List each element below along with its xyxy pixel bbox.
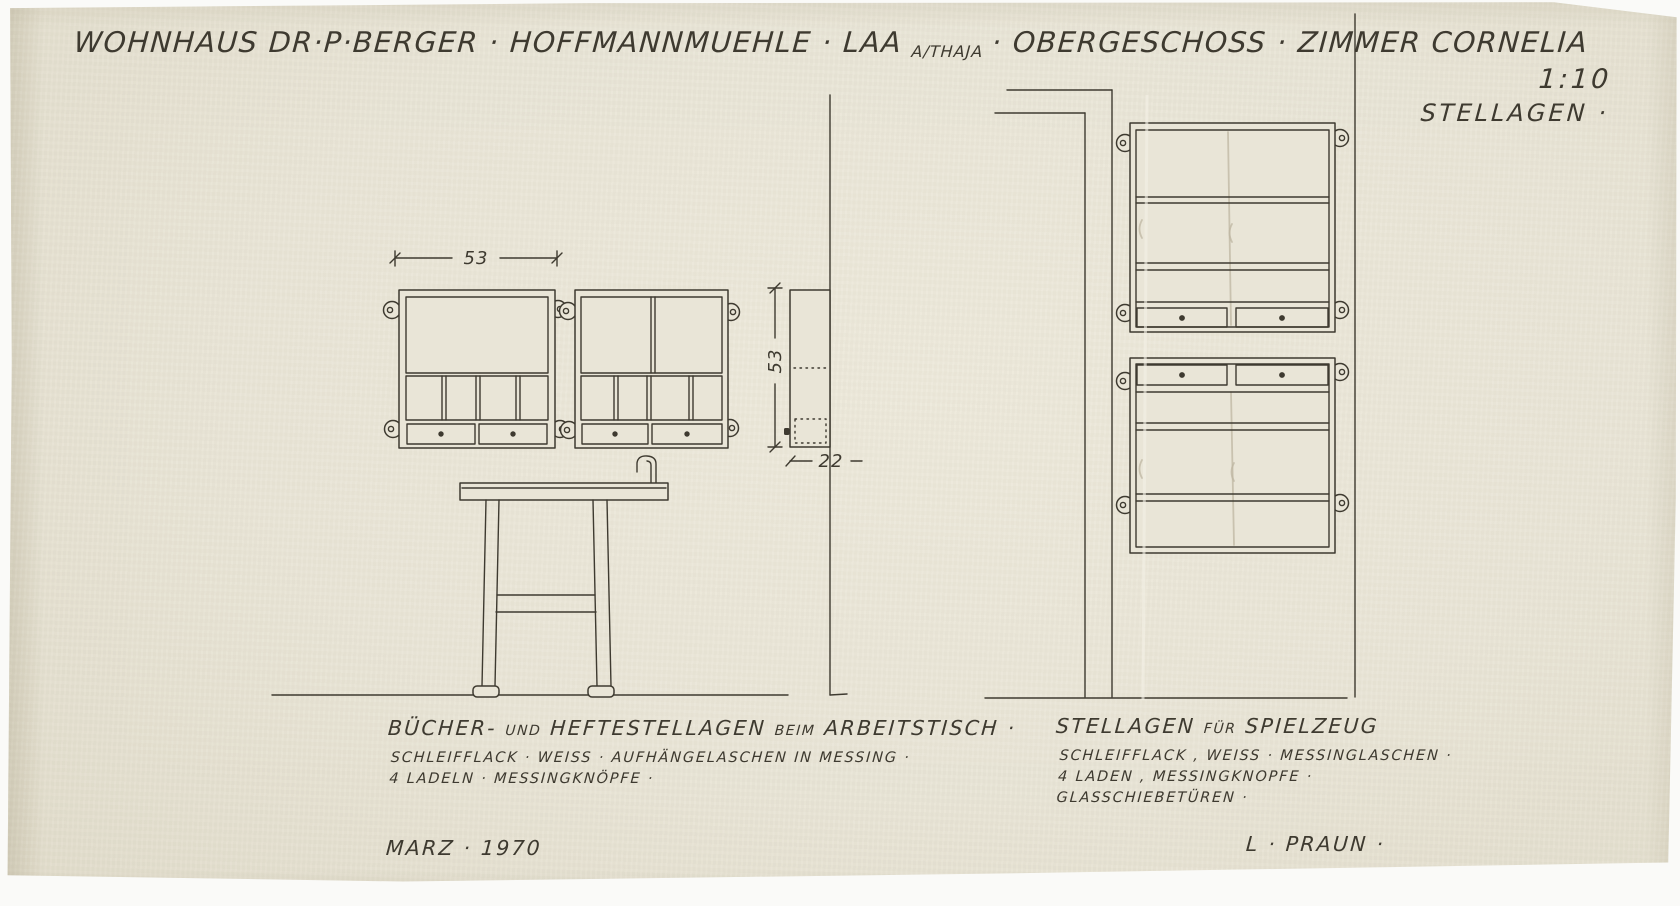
drawing-subject: STELLAGEN · — [1420, 99, 1610, 127]
drawer-knob-icon — [510, 431, 515, 436]
right-wall-section — [985, 14, 1355, 698]
drawer-knob-icon — [684, 431, 689, 436]
spec-line: SCHLEIFFLACK , WEISS · MESSINGLASCHEN · — [1059, 746, 1453, 767]
right-spec-lines: SCHLEIFFLACK , WEISS · MESSINGLASCHEN · … — [1056, 746, 1453, 809]
caption-word: SPIELZEUG — [1244, 714, 1379, 738]
dimension-width: 53 — [390, 248, 562, 269]
caption-word-small: FÜR — [1203, 721, 1237, 737]
caption-word-small: BEIM — [774, 723, 816, 739]
dimension-height: 53 — [765, 283, 786, 452]
signature: L · PRAUN · — [1245, 832, 1386, 856]
toy-cabinet-lower — [1117, 358, 1349, 553]
desk-foot — [473, 686, 499, 697]
left-ground-and-wall — [272, 95, 847, 695]
front-view-shelf-unit-right — [560, 290, 740, 448]
spec-line: 4 LADEN , MESSINGKNOPFE · — [1057, 767, 1451, 788]
drawing-scale: 1:10 — [1422, 64, 1612, 95]
caption-word: ARBEITSTISCH · — [823, 716, 1017, 740]
spec-line: GLASSCHIEBETÜREN · — [1056, 788, 1450, 809]
caption-word: STELLAGEN — [1055, 714, 1196, 738]
drawer-knob-icon — [1179, 372, 1185, 378]
caption-word: HEFTESTELLAGEN — [549, 716, 767, 740]
drawer-knob-icon — [784, 428, 790, 435]
dimension-width-label: 53 — [464, 248, 489, 269]
toy-cabinet-upper — [1117, 123, 1349, 332]
desk-front-view — [460, 456, 668, 697]
spec-line: 4 LADELN · MESSINGKNÖPFE · — [389, 769, 910, 790]
date-label: MARZ · 1970 — [385, 836, 543, 860]
dimension-height-label: 53 — [765, 349, 786, 374]
drawer-knob-icon — [1279, 372, 1285, 378]
caption-word-small: UND — [505, 723, 542, 739]
drawer-knob-icon — [1279, 315, 1285, 321]
dimension-depth: 22 — [786, 451, 862, 472]
left-spec-lines: SCHLEIFFLACK · WEISS · AUFHÄNGELASCHEN I… — [389, 748, 912, 790]
side-view-shelf-unit: 22 — [784, 290, 862, 472]
desk-foot — [588, 686, 614, 697]
drawer-knob-icon — [612, 431, 617, 436]
scale-block: 1:10 STELLAGEN · — [1420, 64, 1613, 127]
front-view-shelf-unit-left — [384, 290, 569, 448]
sheet-title: WOHNHAUS DR·P·BERGER · HOFFMANNMUEHLE · … — [73, 26, 1589, 59]
drawing-sheet-photo: 53 53 — [0, 0, 1680, 906]
caption-word: BÜCHER- — [387, 716, 497, 740]
drawer-knob-icon — [1179, 315, 1185, 321]
dimension-depth-label: 22 — [819, 451, 844, 472]
title-location-small: A/THAJA — [911, 42, 984, 61]
spec-line: SCHLEIFFLACK · WEISS · AUFHÄNGELASCHEN I… — [390, 748, 911, 769]
title-part1: WOHNHAUS DR·P·BERGER · HOFFMANNMUEHLE · … — [73, 26, 903, 59]
left-caption: BÜCHER- UND HEFTESTELLAGEN BEIM ARBEITST… — [387, 716, 1017, 740]
title-part2: · OBERGESCHOSS · ZIMMER CORNELIA — [991, 26, 1590, 59]
drawer-knob-icon — [438, 431, 443, 436]
desk-lamp-icon — [637, 456, 656, 483]
right-caption: STELLAGEN FÜR SPIELZEUG — [1055, 714, 1379, 738]
